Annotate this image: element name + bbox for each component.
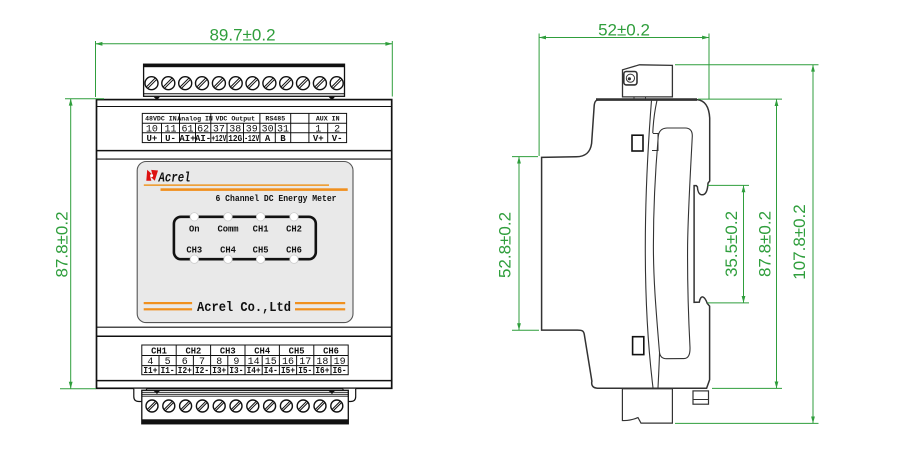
svg-text:I6+: I6+ bbox=[315, 366, 329, 376]
svg-text:87.8±0.2: 87.8±0.2 bbox=[53, 211, 72, 277]
svg-text:CH3: CH3 bbox=[220, 346, 236, 356]
svg-text:I4-: I4- bbox=[264, 366, 278, 376]
svg-text:On: On bbox=[189, 224, 200, 234]
svg-text:CH2: CH2 bbox=[185, 346, 201, 356]
svg-text:RS485: RS485 bbox=[265, 116, 285, 123]
svg-text:AUX IN: AUX IN bbox=[316, 116, 340, 123]
svg-text:CH4: CH4 bbox=[254, 346, 271, 356]
svg-text:CH3: CH3 bbox=[186, 246, 202, 256]
svg-text:CH1: CH1 bbox=[253, 224, 269, 234]
svg-text:I4+: I4+ bbox=[247, 366, 261, 376]
svg-text:89.7±0.2: 89.7±0.2 bbox=[209, 26, 275, 45]
svg-text:CH6: CH6 bbox=[286, 246, 302, 256]
svg-text:CH5: CH5 bbox=[253, 246, 269, 256]
svg-text:52.8±0.2: 52.8±0.2 bbox=[496, 212, 515, 278]
svg-text:35.5±0.2: 35.5±0.2 bbox=[722, 211, 741, 277]
svg-text:CH5: CH5 bbox=[289, 346, 305, 356]
svg-text:I5-: I5- bbox=[298, 366, 312, 376]
svg-text:I6-: I6- bbox=[333, 366, 347, 376]
svg-text:CH2: CH2 bbox=[286, 224, 302, 234]
svg-text:Acrel: Acrel bbox=[158, 171, 191, 187]
svg-text:Comm: Comm bbox=[217, 224, 238, 234]
svg-text:I3-: I3- bbox=[229, 366, 243, 376]
svg-text:U+: U+ bbox=[146, 134, 157, 144]
svg-text:CH6: CH6 bbox=[323, 346, 339, 356]
svg-text:I3+: I3+ bbox=[212, 366, 226, 376]
svg-text:U-: U- bbox=[165, 134, 176, 144]
svg-text:48VDC IN: 48VDC IN bbox=[145, 116, 177, 123]
svg-text:VDC Output: VDC Output bbox=[216, 116, 256, 123]
svg-text:AI+: AI+ bbox=[179, 134, 195, 144]
svg-text:107.8±0.2: 107.8±0.2 bbox=[790, 204, 809, 280]
svg-text:B: B bbox=[280, 134, 286, 144]
svg-text:I2+: I2+ bbox=[178, 366, 192, 376]
svg-text:I1-: I1- bbox=[161, 366, 175, 376]
svg-text:Acrel Co.,Ltd: Acrel Co.,Ltd bbox=[197, 301, 291, 316]
svg-text:V+: V+ bbox=[313, 134, 324, 144]
svg-text:A: A bbox=[265, 134, 271, 144]
svg-text:V-: V- bbox=[332, 134, 343, 144]
svg-text:CH4: CH4 bbox=[220, 246, 237, 256]
svg-text:-12V: -12V bbox=[244, 134, 259, 144]
svg-text:I2-: I2- bbox=[195, 366, 209, 376]
svg-text:12G: 12G bbox=[228, 134, 242, 144]
svg-text:I1+: I1+ bbox=[143, 366, 157, 376]
svg-text:AI-: AI- bbox=[195, 134, 211, 144]
svg-text:+12V: +12V bbox=[211, 134, 226, 144]
svg-text:Analog IN: Analog IN bbox=[177, 116, 213, 123]
svg-text:CH1: CH1 bbox=[151, 346, 167, 356]
svg-text:52±0.2: 52±0.2 bbox=[598, 20, 650, 39]
svg-text:I5+: I5+ bbox=[281, 366, 295, 376]
svg-text:6 Channel DC Energy Meter: 6 Channel DC Energy Meter bbox=[216, 193, 337, 204]
svg-text:87.8±0.2: 87.8±0.2 bbox=[756, 211, 775, 277]
